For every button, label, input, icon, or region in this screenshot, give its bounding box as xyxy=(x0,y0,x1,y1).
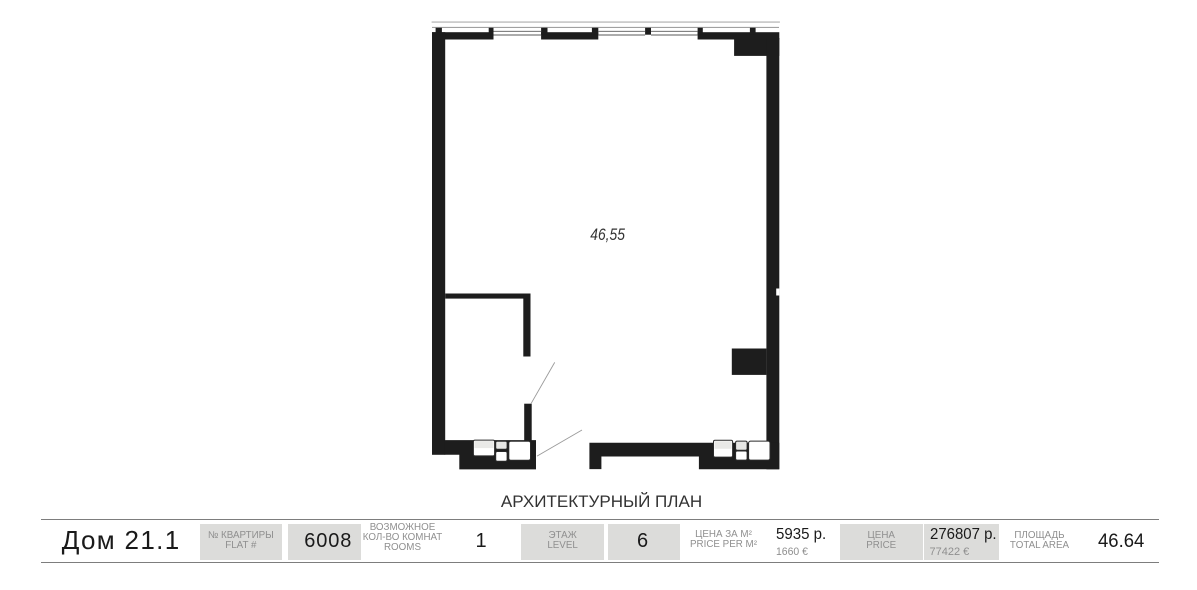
svg-text:46,55: 46,55 xyxy=(590,226,625,244)
